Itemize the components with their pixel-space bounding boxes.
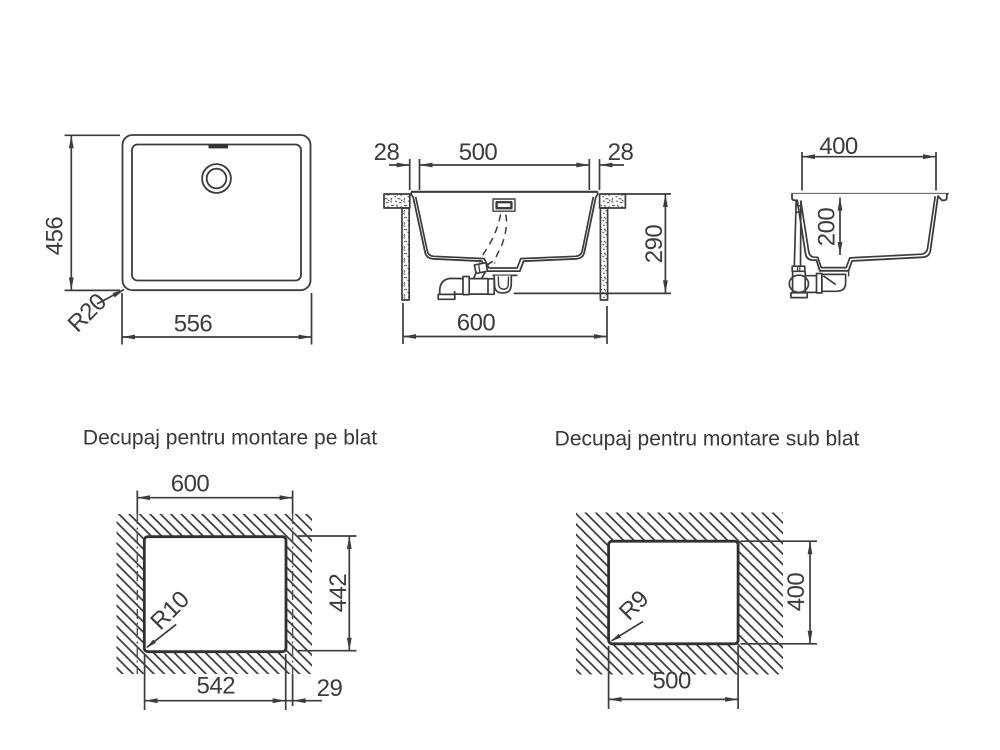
svg-text:28: 28	[374, 139, 400, 166]
svg-text:600: 600	[457, 310, 496, 337]
svg-text:400: 400	[819, 133, 858, 160]
svg-text:Decupaj pentru montare sub bla: Decupaj pentru montare sub blat	[555, 428, 860, 451]
svg-text:R20: R20	[63, 289, 112, 338]
svg-text:400: 400	[783, 573, 810, 612]
svg-text:556: 556	[174, 311, 213, 338]
svg-text:290: 290	[641, 225, 668, 264]
svg-text:28: 28	[608, 139, 634, 166]
svg-text:Decupaj pentru montare pe blat: Decupaj pentru montare pe blat	[83, 427, 377, 450]
svg-text:500: 500	[459, 139, 498, 166]
svg-text:456: 456	[42, 217, 69, 256]
svg-text:500: 500	[652, 668, 691, 695]
svg-text:542: 542	[197, 673, 236, 700]
svg-text:600: 600	[171, 471, 210, 498]
svg-text:29: 29	[317, 675, 343, 702]
svg-text:200: 200	[814, 208, 841, 247]
svg-text:442: 442	[325, 574, 352, 613]
